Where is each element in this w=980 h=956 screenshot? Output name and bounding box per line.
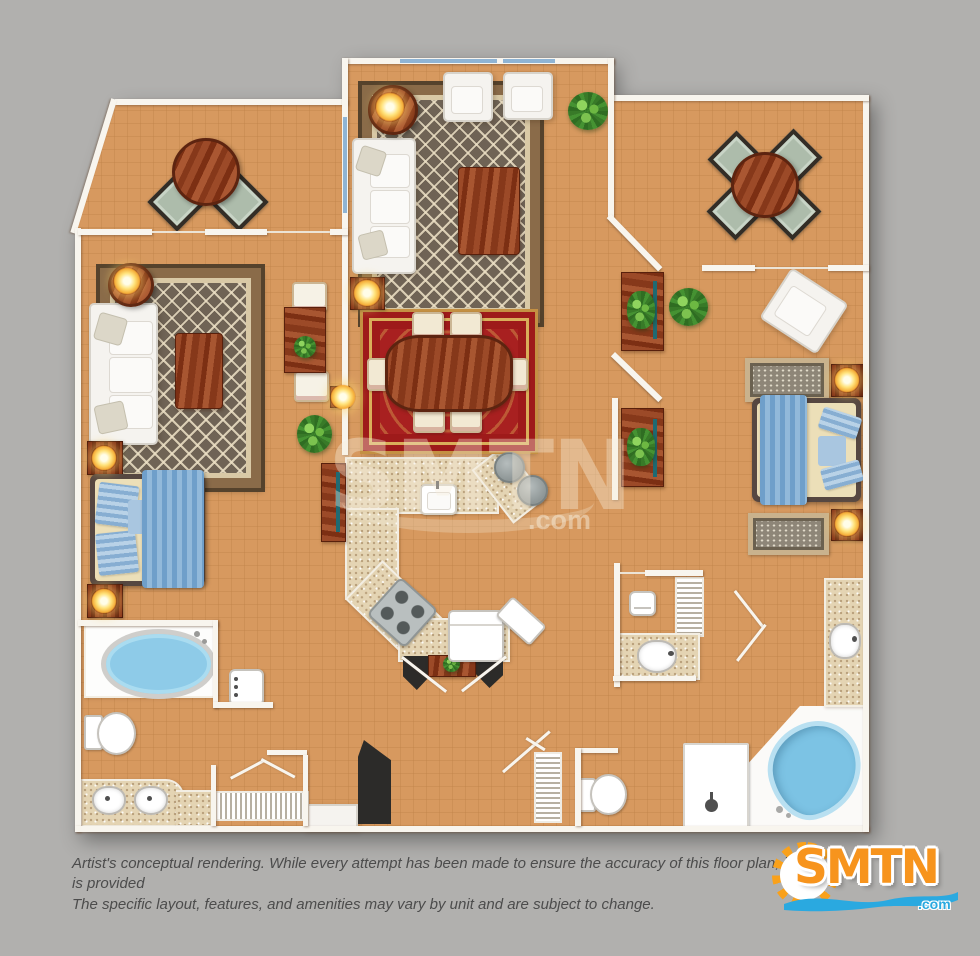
smtn-logo: SMTN .com <box>768 836 974 922</box>
wall-segment <box>75 228 81 832</box>
kitchen-sink <box>420 484 457 515</box>
door-opening-line <box>755 267 828 269</box>
bedside-rug-bottom <box>748 513 829 555</box>
potted-plant <box>297 415 332 453</box>
toilet-bowl <box>590 774 627 815</box>
refrigerator <box>448 610 504 662</box>
sofa-seat <box>109 357 153 393</box>
wall-segment <box>78 620 218 626</box>
potted-plant-dresser <box>627 428 655 466</box>
coffee-table <box>175 333 223 409</box>
logo-com: .com <box>918 896 951 912</box>
wall-segment <box>78 229 152 235</box>
louver-closet-bath <box>675 577 704 637</box>
round-table <box>731 152 799 218</box>
washer-knob <box>234 677 238 681</box>
louver-closet-left <box>215 791 309 821</box>
sofa <box>89 303 158 445</box>
washer-knob <box>234 693 238 697</box>
tub-faucet <box>194 631 200 637</box>
potted-plant-dresser <box>627 291 655 329</box>
logo-text: SMTN <box>794 840 938 895</box>
wall-segment <box>267 750 307 755</box>
tub-faucet <box>202 639 207 644</box>
sink-faucet <box>436 481 439 489</box>
armchair-cushion <box>773 285 828 338</box>
sink-basin <box>427 492 451 510</box>
potted-plant-table <box>294 336 316 358</box>
wall-segment <box>608 58 614 218</box>
window <box>503 59 555 63</box>
shower <box>683 743 749 829</box>
table-lamp-glow <box>113 267 141 295</box>
disclaimer: Artist's conceptual rendering. While eve… <box>72 854 802 915</box>
console-table <box>321 463 346 542</box>
armchair <box>443 72 493 122</box>
wall-segment <box>575 748 581 826</box>
wall-segment <box>702 265 755 271</box>
wall-segment <box>645 570 703 576</box>
bed-pillow <box>95 530 139 576</box>
washer-knob <box>234 685 238 689</box>
wall-segment <box>608 95 869 101</box>
table-lamp-glow <box>91 445 117 471</box>
toilet-bowl <box>97 712 136 755</box>
disclaimer-line-1: Artist's conceptual rendering. While eve… <box>72 854 802 895</box>
bathtub <box>101 629 216 699</box>
fridge-seam <box>450 624 502 626</box>
washer <box>229 669 264 706</box>
table-lamp-glow <box>834 367 860 393</box>
potted-plant <box>669 288 708 326</box>
potted-plant <box>568 92 608 130</box>
window <box>343 117 347 213</box>
wall-segment <box>303 755 308 826</box>
wall-segment <box>863 95 869 832</box>
sink-faucet <box>147 796 152 801</box>
wall-segment <box>578 748 618 753</box>
vanity-sink <box>637 640 677 673</box>
bed-blanket <box>760 395 807 505</box>
wall-segment <box>75 826 869 832</box>
armchair-cushion <box>451 86 483 114</box>
floorplan-canvas: SMTN .com Artist's conceptual rendering.… <box>0 0 980 956</box>
sink-faucet <box>668 651 674 656</box>
wall-segment <box>115 99 348 105</box>
armchair <box>503 72 553 120</box>
balcony-table <box>172 138 240 206</box>
table-lamp-glow <box>834 511 860 537</box>
spa-jet <box>786 813 791 818</box>
armchair-cushion <box>511 86 543 112</box>
dining-table <box>385 335 513 412</box>
louver-closet-hall <box>534 752 562 823</box>
bed-cushion <box>818 436 846 466</box>
wall-segment <box>614 563 620 687</box>
wall-segment <box>213 620 218 708</box>
sink-faucet <box>105 796 110 801</box>
wall-segment <box>330 229 348 235</box>
sofa-pillow <box>93 400 128 435</box>
wall-segment <box>205 229 267 235</box>
sofa <box>352 138 416 274</box>
console-runner <box>336 472 340 532</box>
game-chair <box>294 371 329 402</box>
door-opening-line <box>267 231 330 233</box>
door-opening-line <box>620 572 645 574</box>
wall-segment <box>828 265 869 271</box>
disclaimer-line-2: The specific layout, features, and ameni… <box>72 895 802 915</box>
table-lamp-glow <box>91 588 117 614</box>
vanity-counter-ext <box>176 790 214 827</box>
wall-segment <box>211 765 216 826</box>
wall-segment <box>612 398 618 500</box>
table-lamp-glow <box>330 384 356 410</box>
bed-blanket <box>142 470 204 588</box>
sofa-seat <box>370 190 410 224</box>
window <box>400 59 497 63</box>
table-lamp-glow <box>353 279 381 307</box>
shower-stem <box>710 792 713 801</box>
wall-segment <box>213 702 273 708</box>
table-lamp-glow <box>375 92 405 122</box>
sink-faucet <box>852 636 857 642</box>
door-opening-line <box>152 231 205 233</box>
paper-roll <box>634 607 651 609</box>
wall-segment <box>613 676 696 681</box>
bar-stool <box>517 475 548 506</box>
spa-jet <box>776 806 783 813</box>
bar-stool <box>494 452 525 483</box>
paper-holder <box>629 591 656 616</box>
coffee-table <box>458 167 520 255</box>
